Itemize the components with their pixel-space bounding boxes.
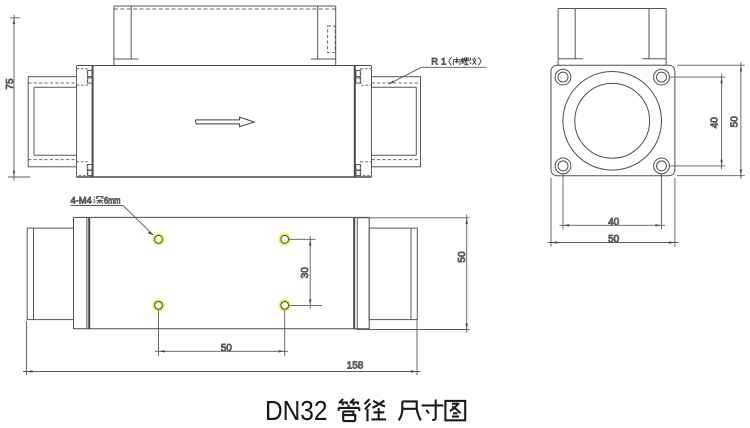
svg-text:40: 40: [608, 217, 620, 228]
svg-text:R: R: [431, 57, 438, 67]
svg-text:1: 1: [441, 57, 446, 67]
svg-text:50: 50: [729, 116, 740, 128]
svg-text:6mm: 6mm: [104, 195, 121, 205]
svg-text:50: 50: [221, 343, 233, 354]
svg-text:DN32: DN32: [265, 395, 328, 426]
svg-text:50: 50: [608, 234, 620, 245]
svg-text:40: 40: [710, 117, 721, 129]
svg-text:30: 30: [300, 267, 311, 279]
svg-text:4-M4: 4-M4: [71, 195, 92, 205]
svg-text:158: 158: [347, 361, 364, 372]
svg-text:50: 50: [457, 251, 468, 263]
svg-text:75: 75: [5, 78, 16, 90]
